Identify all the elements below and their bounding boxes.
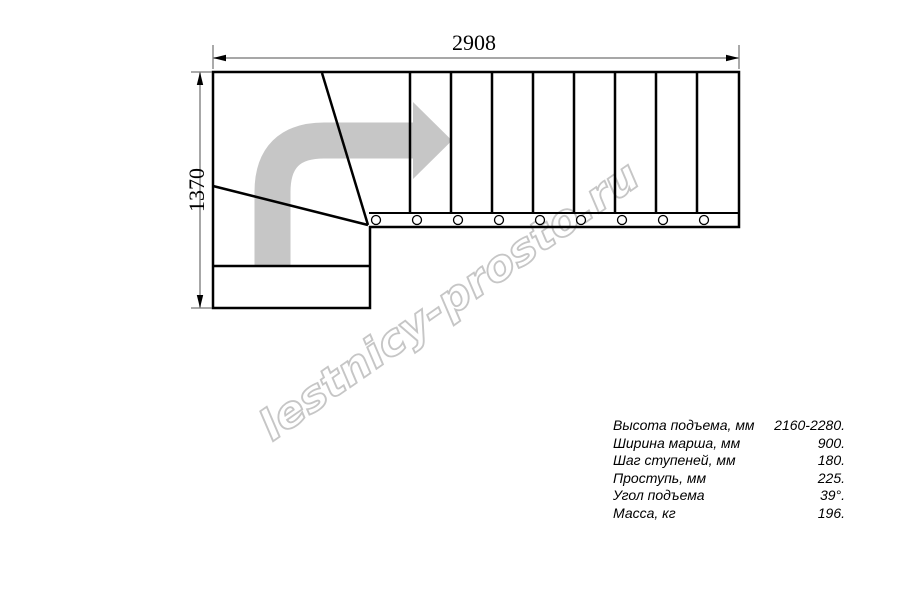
spec-value: 2160-2280. bbox=[774, 417, 845, 435]
dim-arrow-left bbox=[213, 55, 226, 61]
spec-label: Угол подъема bbox=[613, 487, 705, 505]
baluster-circle bbox=[659, 216, 668, 225]
spec-label: Масса, кг bbox=[613, 505, 676, 523]
dim-arrow-top bbox=[197, 72, 203, 85]
staircase-drawing-page: lestnicy-prosto.ru bbox=[0, 0, 900, 600]
baluster-circle bbox=[454, 216, 463, 225]
spec-value: 39°. bbox=[820, 487, 845, 505]
spec-row-tread: Проступь, мм 225. bbox=[613, 470, 845, 488]
baluster-circles bbox=[372, 216, 709, 225]
watermark-text: lestnicy-prosto.ru bbox=[250, 151, 648, 450]
step-divider-lines bbox=[410, 72, 697, 213]
dim-arrow-right bbox=[726, 55, 739, 61]
direction-arrow-head bbox=[413, 102, 452, 179]
spec-label: Шаг ступеней, мм bbox=[613, 452, 736, 470]
spec-row-flight-width: Ширина марша, мм 900. bbox=[613, 435, 845, 453]
baluster-circle bbox=[495, 216, 504, 225]
spec-row-step-pitch: Шаг ступеней, мм 180. bbox=[613, 452, 845, 470]
baluster-circle bbox=[372, 216, 381, 225]
spec-label: Проступь, мм bbox=[613, 470, 706, 488]
spec-value: 900. bbox=[818, 435, 845, 453]
dim-arrow-bottom bbox=[197, 295, 203, 308]
spec-value: 180. bbox=[818, 452, 845, 470]
spec-label: Ширина марша, мм bbox=[613, 435, 740, 453]
baluster-circle bbox=[413, 216, 422, 225]
direction-arrow-shaft bbox=[273, 141, 415, 267]
spec-value: 196. bbox=[818, 505, 845, 523]
spec-row-angle: Угол подъема 39°. bbox=[613, 487, 845, 505]
baluster-circle bbox=[618, 216, 627, 225]
spec-value: 225. bbox=[818, 470, 845, 488]
direction-arrow bbox=[273, 102, 453, 266]
height-dimension: 1370 bbox=[184, 72, 212, 308]
spec-table: Высота подъема, мм 2160-2280. Ширина мар… bbox=[613, 417, 845, 522]
spec-row-height: Высота подъема, мм 2160-2280. bbox=[613, 417, 845, 435]
spec-row-mass: Масса, кг 196. bbox=[613, 505, 845, 523]
baluster-circle bbox=[577, 216, 586, 225]
width-dimension-label: 2908 bbox=[452, 30, 496, 55]
spec-label: Высота подъема, мм bbox=[613, 417, 755, 435]
height-dimension-label: 1370 bbox=[184, 168, 209, 212]
width-dimension: 2908 bbox=[213, 30, 739, 69]
baluster-circle bbox=[700, 216, 709, 225]
baluster-circle bbox=[536, 216, 545, 225]
